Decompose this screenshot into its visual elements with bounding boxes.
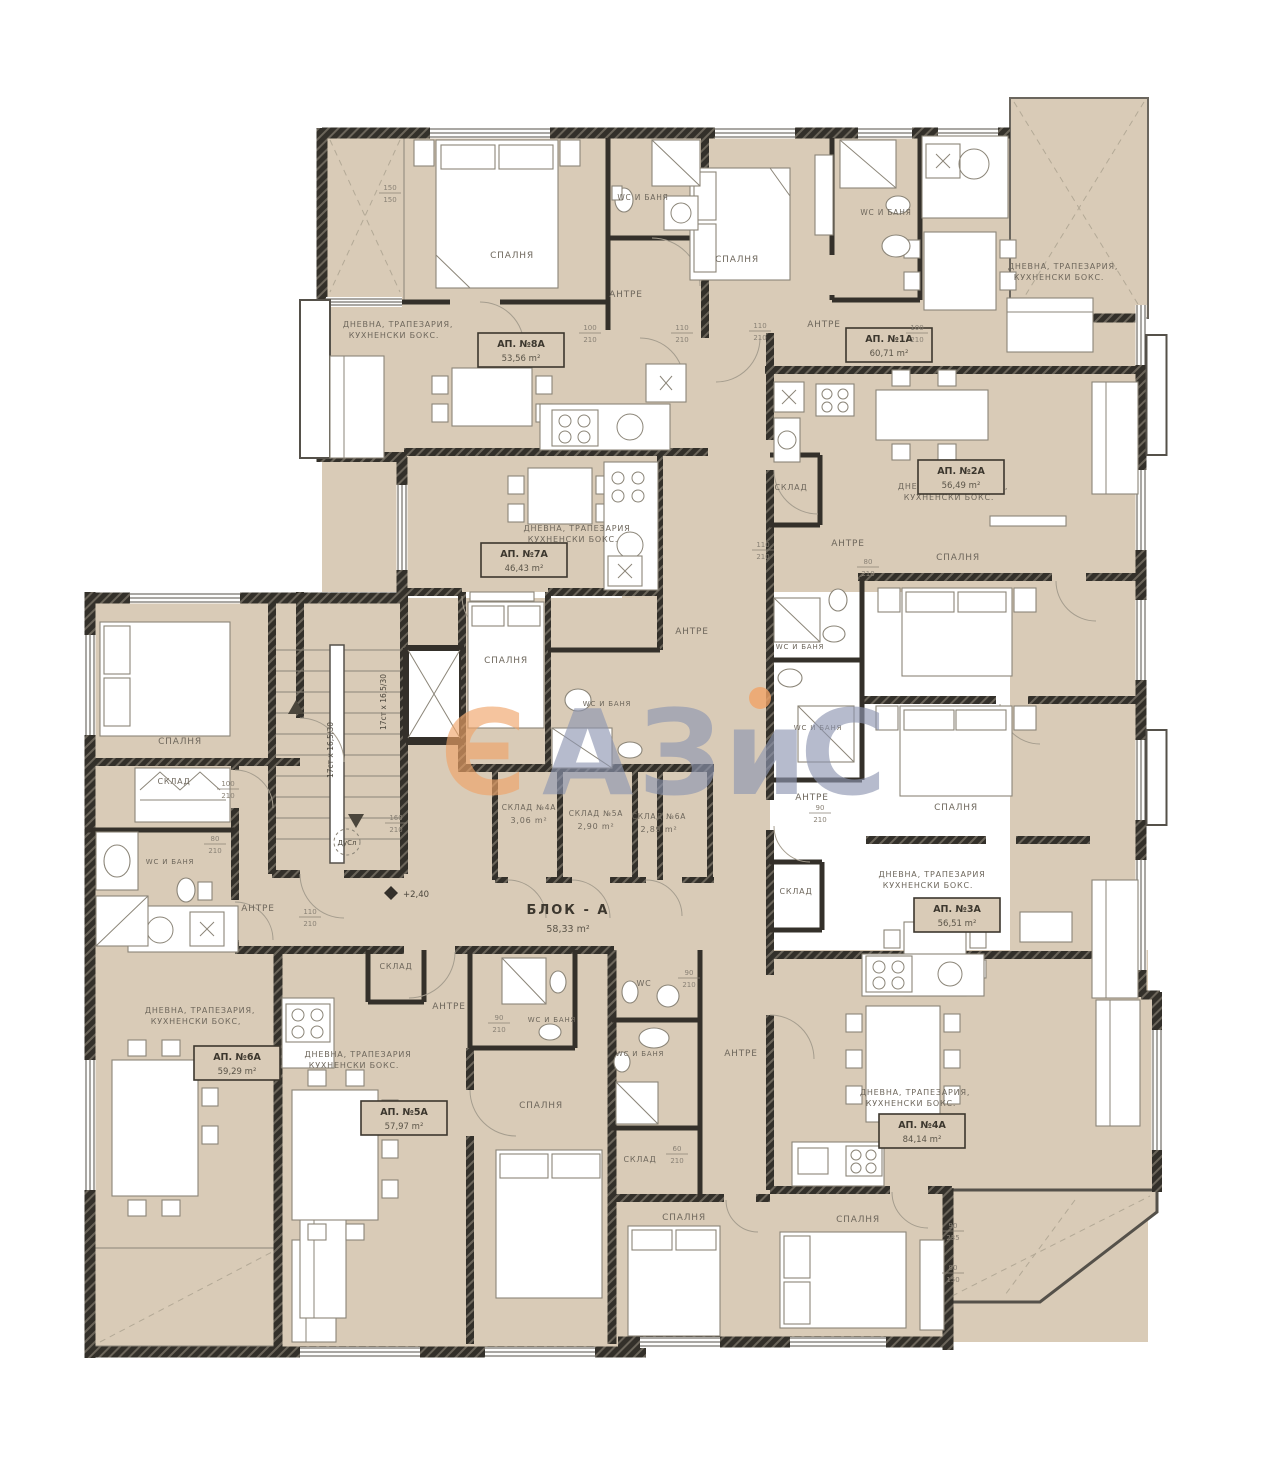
dimension-width: 110 bbox=[675, 324, 688, 332]
room-label: СКЛАД bbox=[379, 962, 412, 971]
room-label: АНТРЕ bbox=[432, 1002, 466, 1012]
dimension-height: 210 bbox=[221, 792, 234, 800]
room-label: ДНЕВНА, ТРАПЕЗАРИЯ, bbox=[145, 1006, 255, 1015]
apartment-number: АП. №4А bbox=[898, 1120, 946, 1131]
apartment-label: АП. №5А57,97 m² bbox=[361, 1101, 447, 1135]
apartment-area: 59,29 m² bbox=[218, 1067, 257, 1077]
sofa bbox=[1096, 1000, 1140, 1126]
bed bbox=[496, 1150, 602, 1298]
watermark-letter: З bbox=[638, 684, 722, 822]
dimension-width: 80 bbox=[864, 558, 873, 566]
sofa bbox=[1007, 298, 1093, 352]
dimension-width: 60 bbox=[673, 1145, 682, 1153]
watermark: Є А З и С bbox=[440, 684, 887, 822]
dimension-height: 150 bbox=[946, 1276, 959, 1284]
block-area: 58,33 m² bbox=[546, 924, 589, 935]
room-label: АНТРЕ bbox=[609, 290, 643, 300]
room-label: СПАЛНЯ bbox=[936, 553, 980, 563]
storage-area: 2,89 m² bbox=[641, 825, 678, 834]
floor-plan-canvas: СПАЛНЯАНТРЕWC И БАНЯДНЕВНА, ТРАПЕЗАРИЯ,К… bbox=[0, 0, 1280, 1476]
sofa bbox=[1092, 382, 1138, 494]
dimension-width: 90 bbox=[495, 1014, 504, 1022]
room-label: ДНЕВНА, ТРАПЕЗАРИЯ bbox=[523, 524, 630, 533]
apartment-area: 46,43 m² bbox=[505, 564, 544, 574]
apartment-label: АП. №8А53,56 m² bbox=[478, 333, 564, 367]
room-label: СПАЛНЯ bbox=[662, 1213, 706, 1223]
apartment-number: АП. №8А bbox=[497, 339, 545, 350]
stairs-label: 17ст х 16,5/30 bbox=[379, 674, 388, 730]
room-label: КУХНЕНСКИ БОКС. bbox=[1014, 273, 1105, 282]
watermark-letter: А bbox=[542, 684, 633, 822]
room-label: СПАЛНЯ bbox=[519, 1101, 563, 1111]
room-label: WC И БАНЯ bbox=[776, 643, 824, 651]
room-label: ДНЕВНА, ТРАПЕЗАРИЯ bbox=[304, 1050, 411, 1059]
bed bbox=[436, 140, 558, 288]
bed bbox=[628, 1226, 720, 1336]
bed bbox=[900, 706, 1012, 796]
apartment-label: АП. №2А56,49 m² bbox=[918, 460, 1004, 494]
apartment-area: 56,49 m² bbox=[942, 481, 981, 491]
apartment-area: 84,14 m² bbox=[903, 1135, 942, 1145]
stairs-label: 17ст х 16,5/30 bbox=[326, 722, 335, 778]
dimension-height: 210 bbox=[910, 336, 923, 344]
room-label: АНТРЕ bbox=[241, 904, 275, 914]
apartment-number: АП. №6А bbox=[213, 1052, 261, 1063]
sofa bbox=[1092, 880, 1138, 998]
apartment-number: АП. №1А bbox=[865, 334, 913, 345]
dimension-width: 80 bbox=[949, 1264, 958, 1272]
room-label: СКЛАД bbox=[774, 483, 807, 492]
level-mark-text: +2,40 bbox=[403, 890, 429, 900]
dimension-height: 210 bbox=[753, 334, 766, 342]
apartment-number: АП. №3А bbox=[933, 904, 981, 915]
dimension-height: 210 bbox=[492, 1026, 505, 1034]
apartment-number: АП. №2А bbox=[937, 466, 985, 477]
room-label: ДНЕВНА, ТРАПЕЗАРИЯ, bbox=[343, 320, 453, 329]
room-label: КУХНЕНСКИ БОКС. bbox=[866, 1099, 957, 1108]
dimension-height: 210 bbox=[389, 826, 402, 834]
dimension-width: 110 bbox=[303, 908, 316, 916]
apartment-label: АП. №3А56,51 m² bbox=[914, 898, 1000, 932]
dimension-height: 210 bbox=[861, 570, 874, 578]
dimension-width: 100 bbox=[221, 780, 234, 788]
room-label: СКЛАД bbox=[779, 887, 812, 896]
kitchen bbox=[792, 1142, 884, 1186]
apartment-number: АП. №7А bbox=[500, 549, 548, 560]
dimension-height: 210 bbox=[670, 1157, 683, 1165]
room-label: КУХНЕНСКИ БОКС, bbox=[151, 1017, 242, 1026]
apartment-label: АП. №6А59,29 m² bbox=[194, 1046, 280, 1080]
kitchen bbox=[862, 954, 984, 996]
kitchen bbox=[922, 136, 1008, 218]
dimension-width: 80 bbox=[211, 835, 220, 843]
block-name: БЛОК - А bbox=[527, 903, 610, 918]
watermark-dot bbox=[749, 687, 771, 709]
apartment-area: 56,51 m² bbox=[938, 919, 977, 929]
room-label: АНТРЕ bbox=[724, 1049, 758, 1059]
room-label: ДНЕВНА, ТРАПЕЗАРИЯ, bbox=[1008, 262, 1118, 271]
room-label: WC bbox=[636, 979, 651, 988]
dimension-width: 160 bbox=[389, 814, 402, 822]
dimension-height: 210 bbox=[756, 553, 769, 561]
room-label: СПАЛНЯ bbox=[934, 803, 978, 813]
room-label: АНТРЕ bbox=[807, 320, 841, 330]
room-label: КУХНЕНСКИ БОКС. bbox=[349, 331, 440, 340]
dimension-height: 210 bbox=[303, 920, 316, 928]
watermark-letter: С bbox=[800, 684, 887, 822]
dimension-width: 100 bbox=[910, 324, 923, 332]
dimension-height: 210 bbox=[675, 336, 688, 344]
room-label: КУХНЕНСКИ БОКС. bbox=[309, 1061, 400, 1070]
room-label: WC И БАНЯ bbox=[146, 858, 194, 866]
dimension-width: 110 bbox=[753, 322, 766, 330]
bathroom bbox=[774, 589, 847, 642]
room-label: СКЛАД bbox=[623, 1155, 656, 1164]
room-label: АНТРЕ bbox=[675, 627, 709, 637]
dimension-height: 210 bbox=[583, 336, 596, 344]
apartment-number: АП. №5А bbox=[380, 1107, 428, 1118]
apartment-area: 57,97 m² bbox=[385, 1122, 424, 1132]
room-label: WC И БАНЯ bbox=[860, 208, 911, 217]
room-label: WC И БАНЯ bbox=[616, 1050, 664, 1058]
apartment-label: АП. №4А84,14 m² bbox=[879, 1114, 965, 1148]
room-label: СПАЛНЯ bbox=[836, 1215, 880, 1225]
dimension-height: 210 bbox=[208, 847, 221, 855]
room-label: КУХНЕНСКИ БОКС. bbox=[883, 881, 974, 890]
room-label: ДНЕВНА, ТРАПЕЗАРИЯ bbox=[878, 870, 985, 879]
room-label: АНТРЕ bbox=[831, 539, 865, 549]
dimension-width: 90 bbox=[685, 969, 694, 977]
apartment-area: 60,71 m² bbox=[870, 349, 909, 359]
room-label: WC И БАНЯ bbox=[528, 1016, 576, 1024]
dimension-width: 150 bbox=[383, 184, 396, 192]
room-label: СПАЛНЯ bbox=[490, 251, 534, 261]
room-label: ДНЕВНА, ТРАПЕЗАРИЯ, bbox=[860, 1088, 970, 1097]
shaft-label: ДуСл bbox=[338, 839, 357, 847]
watermark-letter: Є bbox=[440, 684, 527, 822]
dimension-width: 110 bbox=[756, 541, 769, 549]
sofa bbox=[330, 356, 384, 458]
dimension-height: 210 bbox=[682, 981, 695, 989]
dimension-width: 90 bbox=[949, 1222, 958, 1230]
bed bbox=[780, 1232, 906, 1328]
room-label: СКЛАД bbox=[157, 777, 190, 786]
apartment-area: 53,56 m² bbox=[502, 354, 541, 364]
apartment-label: АП. №7А46,43 m² bbox=[481, 543, 567, 577]
storage-area: 2,90 m² bbox=[578, 822, 615, 831]
dimension-width: 100 bbox=[583, 324, 596, 332]
bed bbox=[100, 622, 230, 736]
room-label: WC И БАНЯ bbox=[617, 193, 668, 202]
room-label: СПАЛНЯ bbox=[158, 737, 202, 747]
dimension-height: 150 bbox=[383, 196, 396, 204]
room-label: СПАЛНЯ bbox=[484, 656, 528, 666]
bed bbox=[902, 588, 1012, 676]
room-label: СПАЛНЯ bbox=[715, 255, 759, 265]
floor-plan-drawing: СПАЛНЯАНТРЕWC И БАНЯДНЕВНА, ТРАПЕЗАРИЯ,К… bbox=[0, 0, 1280, 1476]
dimension-height: 235 bbox=[946, 1234, 959, 1242]
